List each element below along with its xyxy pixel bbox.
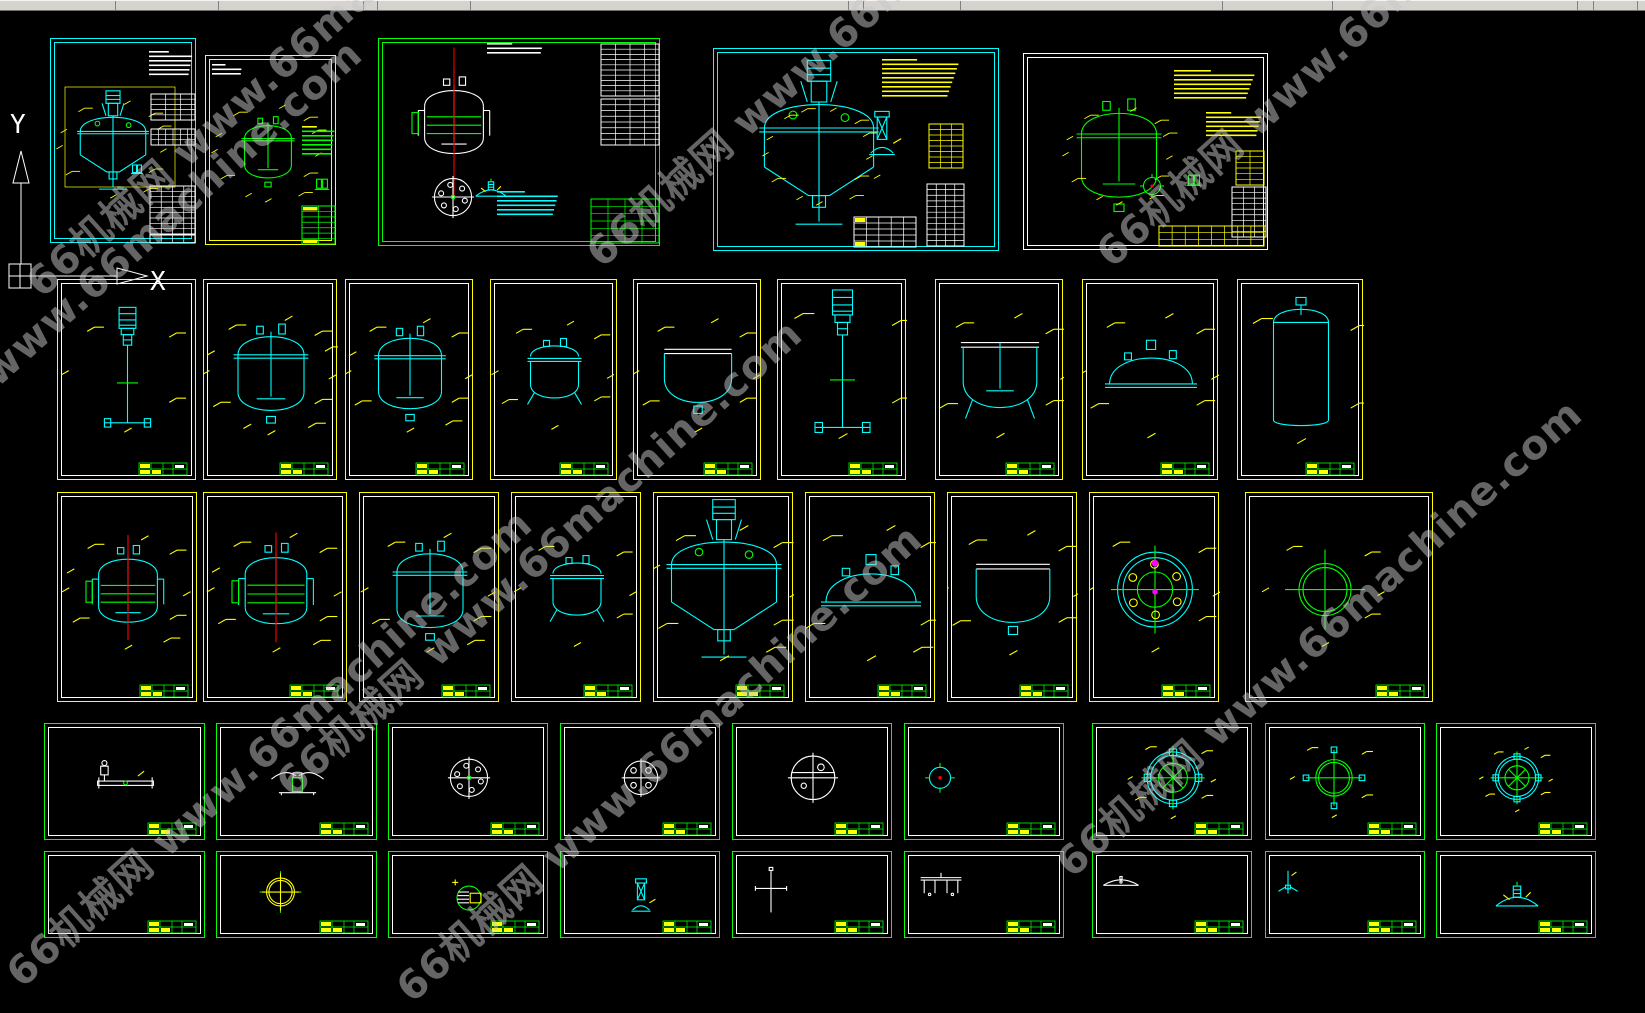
title-block <box>663 823 711 835</box>
flange2-drawing <box>1479 747 1552 812</box>
drawing-sheet-graphics <box>1090 493 1220 703</box>
vessel2-drawing <box>241 117 294 187</box>
title-block <box>1020 685 1068 697</box>
title-block <box>736 685 784 697</box>
title-block <box>1539 823 1587 835</box>
drawing-sheet-graphics <box>204 280 338 481</box>
title-block <box>663 921 711 933</box>
drawing-frame-E1[interactable] <box>44 851 205 938</box>
parts-table <box>150 186 195 234</box>
valve-drawing <box>131 165 143 174</box>
reactor-drawing <box>77 91 149 189</box>
drawing-sheet-graphics <box>1437 724 1597 841</box>
notes-text-lines <box>882 59 958 97</box>
drawing-frame-D1[interactable] <box>44 723 205 840</box>
drawing-sheet-graphics <box>714 49 1000 252</box>
cad-viewport: { "app": {"description": "CAD model spac… <box>0 0 1645 992</box>
drawing-frame-C2[interactable] <box>203 492 347 702</box>
title-block <box>1195 823 1243 835</box>
pot-drawing <box>492 321 614 429</box>
drawing-frame-B6[interactable] <box>777 279 906 480</box>
title-block <box>148 823 196 835</box>
agitator-drawing <box>778 290 907 439</box>
drawing-sheet-graphics <box>389 724 549 841</box>
drawing-sheet-graphics <box>1024 54 1269 251</box>
drawing-sheet-graphics <box>733 852 893 939</box>
parts-table <box>854 217 916 247</box>
title-block <box>1006 463 1054 475</box>
reactor-drawing <box>759 60 879 224</box>
scrollbar-separator <box>115 1 116 10</box>
ringcross-drawing <box>260 871 302 913</box>
title-block <box>140 685 188 697</box>
drawing-sheet-graphics <box>217 724 378 841</box>
scrollbar-separator <box>1332 1 1333 10</box>
tank-drawing <box>936 313 1064 437</box>
title-block <box>1539 921 1587 933</box>
title-block <box>320 823 368 835</box>
title-block <box>442 685 490 697</box>
drawing-sheet-graphics <box>346 280 474 481</box>
valve-drawing <box>315 179 329 189</box>
valve-drawing <box>1187 175 1201 185</box>
vessel2-drawing <box>204 316 338 435</box>
bench-drawing <box>921 873 962 896</box>
vessel2-drawing <box>346 319 473 433</box>
title-block <box>320 921 368 933</box>
parts-table <box>151 129 195 145</box>
boltcircle-drawing <box>432 176 474 218</box>
clamp-drawing <box>476 179 507 197</box>
title-block <box>560 463 608 475</box>
title-block <box>835 921 883 933</box>
drawing-frame-D5[interactable] <box>732 723 892 840</box>
jacketed-drawing <box>412 48 490 200</box>
bigcircle-drawing <box>788 753 838 803</box>
title-block <box>835 823 883 835</box>
parts-table <box>601 99 659 145</box>
drawing-sheet-graphics <box>948 493 1078 703</box>
drawing-frame-E7[interactable] <box>1092 851 1252 938</box>
drawing-sheet-graphics <box>58 280 197 481</box>
drawing-sheet-graphics <box>561 852 721 939</box>
crosscircle-drawing <box>1290 747 1373 818</box>
drawing-frame-A1[interactable] <box>50 38 196 243</box>
agitator-drawing <box>61 307 186 432</box>
drawing-frame-C6[interactable] <box>805 492 935 702</box>
clamp-drawing <box>1496 882 1538 906</box>
title-block <box>878 685 926 697</box>
drawing-frame-A4[interactable] <box>713 48 999 251</box>
parts-table <box>150 235 195 243</box>
drawing-sheet-graphics <box>512 493 642 703</box>
model-space[interactable]: Y X <box>0 11 1645 992</box>
scrollbar-separator <box>848 1 849 10</box>
flange2-drawing <box>1128 746 1216 819</box>
notes-text-lines <box>487 43 542 54</box>
title-block <box>1195 921 1243 933</box>
notes-text-lines <box>212 64 241 75</box>
title-block <box>1162 685 1210 697</box>
parts-table <box>302 206 335 244</box>
drawing-sheet-graphics <box>45 852 206 939</box>
jacketed-drawing <box>207 532 342 652</box>
drawing-frame-C9[interactable] <box>1245 492 1433 702</box>
dimension-leaders <box>762 108 880 205</box>
title-block <box>491 921 539 933</box>
drawing-frame-E2[interactable] <box>216 851 377 938</box>
notes-text-lines <box>1174 70 1254 99</box>
drawing-frame-B5[interactable] <box>633 279 761 480</box>
scrollbar-separator <box>1593 1 1594 10</box>
drawing-sheet-graphics <box>936 280 1064 481</box>
openvessel-drawing <box>634 319 761 433</box>
drawing-sheet-graphics <box>1083 280 1219 481</box>
drawing-frame-C3[interactable] <box>359 492 499 702</box>
scrollbar-separator <box>377 1 378 10</box>
drawing-frame-C7[interactable] <box>947 492 1077 702</box>
title-block <box>491 823 539 835</box>
smallcircle-drawing <box>925 763 955 793</box>
drawing-sheet-graphics <box>905 852 1065 939</box>
head-drawing <box>806 526 936 661</box>
title-block <box>1007 921 1055 933</box>
title-block <box>584 685 632 697</box>
vessel2-drawing <box>361 533 496 652</box>
horizontal-scrollbar[interactable] <box>0 0 1645 11</box>
scrollbar-separator <box>960 1 961 10</box>
parts-table <box>927 184 964 246</box>
drawing-sheet-graphics <box>905 724 1065 841</box>
drawing-frame-C4[interactable] <box>511 492 641 702</box>
drawing-frame-B4[interactable] <box>490 279 617 480</box>
drawing-frame-E9[interactable] <box>1436 851 1596 938</box>
drawing-sheet-graphics <box>1266 852 1426 939</box>
notes-text-lines <box>149 51 192 75</box>
drawing-frame-E4[interactable] <box>560 851 720 938</box>
drawing-frame-B9[interactable] <box>1237 279 1363 480</box>
drawing-frame-B2[interactable] <box>203 279 337 480</box>
drawing-frame-D2[interactable] <box>216 723 377 840</box>
notes-text-lines <box>1206 112 1261 136</box>
drawing-frame-D4[interactable] <box>560 723 720 840</box>
drawing-sheet-graphics <box>206 56 337 246</box>
parts-table <box>1236 151 1264 185</box>
impellerside-drawing <box>271 773 323 796</box>
vcross-drawing <box>755 867 786 912</box>
scrollbar-separator <box>218 1 219 10</box>
drawing-sheet-graphics <box>51 39 197 244</box>
drawing-frame-D8[interactable] <box>1265 723 1425 840</box>
title-block <box>1368 921 1416 933</box>
drawing-sheet-graphics <box>491 280 618 481</box>
drawing-sheet-graphics <box>45 724 206 841</box>
boltcircle4-drawing <box>622 759 660 797</box>
drawing-frame-C1[interactable] <box>57 492 197 702</box>
title-block <box>1007 823 1055 835</box>
drawing-frame-A2[interactable] <box>205 55 336 245</box>
drawing-sheet-graphics <box>1266 724 1426 841</box>
drawing-frame-D6[interactable] <box>904 723 1064 840</box>
scrollbar-separator <box>1637 1 1638 10</box>
drawing-frame-D9[interactable] <box>1436 723 1596 840</box>
title-block <box>416 463 464 475</box>
title-block <box>280 463 328 475</box>
parts-table <box>1159 226 1264 246</box>
title-block <box>148 921 196 933</box>
pot-drawing <box>514 546 636 646</box>
scrollbar-separator <box>470 1 471 10</box>
crosscircle-drawing <box>1262 546 1384 646</box>
title-block <box>1368 823 1416 835</box>
column-drawing <box>631 879 655 911</box>
hatchcircle-drawing <box>452 879 481 910</box>
head-drawing <box>1083 313 1219 437</box>
drawing-sheet-graphics <box>1093 852 1253 939</box>
drawing-sheet-graphics <box>58 493 198 703</box>
drawing-sheet-graphics <box>1238 280 1364 481</box>
parts-table <box>1232 187 1266 237</box>
title-block <box>704 463 752 475</box>
drawing-sheet-graphics <box>1437 852 1597 939</box>
drawing-frame-A3[interactable] <box>378 38 660 246</box>
drawing-sheet-graphics <box>389 852 549 939</box>
drawing-sheet-graphics <box>806 493 936 703</box>
parts-table <box>601 44 659 96</box>
title-block <box>1376 685 1424 697</box>
drawing-frame-C5[interactable] <box>653 492 793 702</box>
ucs-y-label: Y <box>10 110 26 140</box>
jacketed-drawing <box>62 535 191 649</box>
drawing-sheet-graphics <box>360 493 500 703</box>
drawing-frame-E6[interactable] <box>904 851 1064 938</box>
notes-text-lines <box>497 191 558 215</box>
drawing-frame-B1[interactable] <box>57 279 196 480</box>
drawing-sheet-graphics <box>561 724 721 841</box>
drawing-sheet-graphics <box>654 493 794 703</box>
drawing-sheet-graphics <box>204 493 348 703</box>
openvessel-drawing <box>948 531 1078 655</box>
parts-table <box>929 124 963 168</box>
reactor-drawing <box>654 500 794 661</box>
drawing-frame-B3[interactable] <box>345 279 473 480</box>
drawing-frame-A5[interactable] <box>1023 53 1268 250</box>
parts-table <box>591 199 659 243</box>
drawing-sheet-graphics <box>1093 724 1253 841</box>
cyl-drawing <box>1238 297 1364 443</box>
title-block <box>1306 463 1354 475</box>
drawing-sheet-graphics <box>217 852 378 939</box>
drawing-frame-C8[interactable] <box>1089 492 1219 702</box>
title-block <box>849 463 897 475</box>
smallcircle-drawing <box>1140 174 1164 198</box>
title-block <box>139 463 187 475</box>
boltflange-drawing <box>1090 542 1220 652</box>
drawing-sheet-graphics <box>733 724 893 841</box>
drawing-frame-E3[interactable] <box>388 851 548 938</box>
scrollbar-separator <box>863 1 864 10</box>
drawing-sheet-graphics <box>778 280 907 481</box>
parts-table <box>151 94 195 120</box>
drawing-frame-D7[interactable] <box>1092 723 1252 840</box>
drawing-frame-B8[interactable] <box>1082 279 1218 480</box>
scrollbar-separator <box>1222 1 1223 10</box>
scrollbar-separator <box>1577 1 1578 10</box>
lyingagit-drawing <box>98 761 154 789</box>
title-block <box>290 685 338 697</box>
scrollbar-separator <box>363 1 364 10</box>
drawing-frame-B7[interactable] <box>935 279 1063 480</box>
smallimp-drawing <box>1278 871 1297 894</box>
drawing-sheet-graphics <box>379 39 661 247</box>
drawing-frame-D3[interactable] <box>388 723 548 840</box>
boltcircle-drawing <box>448 757 490 799</box>
drawing-sheet-graphics <box>1246 493 1434 703</box>
drawing-sheet-graphics <box>634 280 762 481</box>
dish-drawing <box>1103 877 1138 886</box>
drawing-frame-E5[interactable] <box>732 851 892 938</box>
title-block <box>1161 463 1209 475</box>
dimension-leaders <box>1062 108 1177 205</box>
drawing-frame-E8[interactable] <box>1265 851 1425 938</box>
